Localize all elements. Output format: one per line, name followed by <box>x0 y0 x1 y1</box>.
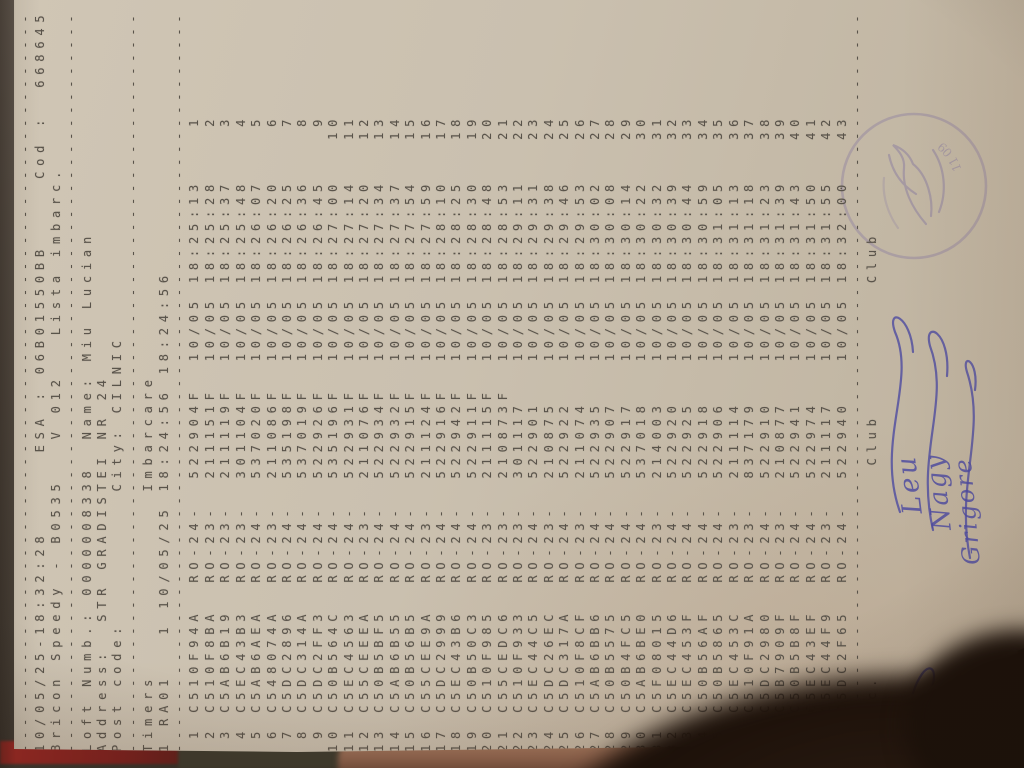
svg-text:11 09: 11 09 <box>935 139 964 173</box>
table-row: 30 C5AB6BE0 RO-24- 537018 10/05 18:30:22… <box>634 7 649 752</box>
table-row: 12 C55CEEEA RO-23- 211076F 10/05 18:27:2… <box>357 7 372 752</box>
table-row: 25 C5DC317A RO-24- 522922 10/05 18:29:46… <box>557 7 572 752</box>
table-row: 18 C5EC43B6 RO-24- 522942F 10/05 18:28:2… <box>449 7 464 752</box>
table-row: 21 C55CEDC6 RO-23- 210873F 10/05 18:28:5… <box>496 7 511 752</box>
table-row: 4 C5EC43B3 RO-23- 301104F 10/05 18:25:48… <box>234 7 249 752</box>
table-row: 43 C5DC2F65 RO-24- 522940 10/05 18:32:00… <box>835 7 850 752</box>
separator-line: ----------------------------------------… <box>172 7 187 752</box>
table-row: 14 C5AB6B55 RO-24- 522932F 10/05 18:27:3… <box>388 7 403 752</box>
document-line: Address: STR GRADISTEI NR 24 <box>95 7 110 752</box>
table-row: 41 C5EC43EF RO-24- 522974 10/05 18:31:50… <box>804 7 819 752</box>
stamp-arc-text: 11 09 <box>935 139 964 173</box>
table-row: 39 C5B7909F RO-23- 210877 10/05 18:31:39… <box>773 7 788 752</box>
table-row: 29 C50B4FC5 RO-24- 522917 10/05 18:30:14… <box>619 7 634 752</box>
table-row: 8 C5DC314A RO-24- 537019F 10/05 18:26:36… <box>295 7 310 752</box>
document-line: Loft Numb.: 0000008338 Name: Miu Lucian <box>80 7 95 752</box>
separator-line: ----------------------------------------… <box>64 7 79 752</box>
table-row: 22 C510F933 RO-23- 301117 10/05 18:29:11… <box>511 7 526 752</box>
document-line: Timers Imbarcare <box>141 7 156 752</box>
table-row: 19 C50B50C3 RO-24- 522911F 10/05 18:28:3… <box>465 7 480 752</box>
document-line: Bricon Speedy - B0535 V 012 Lista imbarc… <box>49 7 64 752</box>
table-row: 31 C5F08015 RO-23- 214003 10/05 18:30:32… <box>650 7 665 752</box>
table-row: 9 C5DC2FF3 RO-24- 522926F 10/05 18:26:45… <box>311 7 326 752</box>
table-row: 15 C50B56B5 RO-24- 522915F 10/05 18:27:5… <box>403 7 418 752</box>
pigeon-icon <box>884 145 944 228</box>
table-row: 40 C50B5B8F RO-24- 522941 10/05 18:31:43… <box>788 7 803 752</box>
table-row: 6 C548074A RO-23- 211086F 10/05 18:26:20… <box>265 7 280 752</box>
table-row: 24 C5DC26EC RO-23- 210875 10/05 18:29:38… <box>542 7 557 752</box>
table-row: 32 C5EC44D6 RO-24- 522920 10/05 18:30:39… <box>665 7 680 752</box>
table-row: 33 C5EC453F RO-24- 522925 10/05 18:30:44… <box>680 7 695 752</box>
table-row: 27 C5AB6BB6 RO-24- 522935 10/05 18:30:02… <box>588 7 603 752</box>
table-row: 17 C5DC2999 RO-24- 522916F 10/05 18:28:1… <box>434 7 449 752</box>
table-row: 11 C5EC4563 RO-24- 522931F 10/05 18:27:1… <box>342 7 357 752</box>
table-row: 20 C510F985 RO-23- 211115F 10/05 18:28:4… <box>480 7 495 752</box>
table-row: 34 C50B56AF RO-24- 522918 10/05 18:30:59… <box>696 7 711 752</box>
separator-line: ----------------------------------------… <box>18 7 33 752</box>
document-text: ----------------------------------------… <box>18 7 884 752</box>
table-row: 2 C510F8BA RO-23- 211151F 10/05 18:25:28… <box>203 7 218 752</box>
table-row: 37 C510F91A RO-23- 837179 10/05 18:31:18… <box>742 7 757 752</box>
table-row: 1 C510F94A RO-24- 522904F 10/05 18:25:13… <box>187 7 202 752</box>
table-row: 13 C50B5BF5 RO-24- 522934F 10/05 18:27:3… <box>372 7 387 752</box>
table-row: 26 C510F8CF RO-23- 211074 10/05 18:29:53… <box>573 7 588 752</box>
table-row: 16 C55CEE9A RO-23- 211124F 10/05 18:27:5… <box>419 7 434 752</box>
table-row: 3 C5AB6B19 RO-23- 211119F 10/05 18:25:37… <box>218 7 233 752</box>
table-row: 35 C50B5865 RO-24- 522906 10/05 18:31:05… <box>711 7 726 752</box>
table-row: 36 C5EC453C RO-23- 211114 10/05 18:31:13… <box>727 7 742 752</box>
table-row: 7 C5DC2896 RO-24- 535198F 10/05 18:26:25… <box>280 7 295 752</box>
table-row: 10 C50B564C RO-24- 535196F 10/05 18:27:0… <box>326 7 341 752</box>
photo-scene: 11 09 ----------------------------------… <box>0 0 1024 768</box>
document-line: 1 RA01 1 10/05/25 18:24:56 18:24:56 <box>157 7 172 752</box>
table-row: 28 C50B5575 RO-24- 522907 10/05 18:30:08… <box>603 7 618 752</box>
document-line: 10/05/25-18:32:28 ESA : 06B01550BB Cod :… <box>33 7 48 752</box>
separator-line: ----------------------------------------… <box>126 7 141 752</box>
signature-flourish-strokes <box>855 290 1015 590</box>
table-row: 42 C5EC44F9 RO-23- 211117 10/05 18:31:55… <box>819 7 834 752</box>
table-row: 5 C5AB6AEA RO-24- 537020F 10/05 18:26:07… <box>249 7 264 752</box>
table-row: 38 C5DC2980 RO-24- 522910 10/05 18:31:23… <box>758 7 773 752</box>
printed-document-paper: 11 09 ----------------------------------… <box>0 0 1024 768</box>
table-row: 23 C5EC44C5 RO-24- 522901 10/05 18:29:31… <box>526 7 541 752</box>
document-line: Post code: City: CILNIC <box>110 7 125 752</box>
